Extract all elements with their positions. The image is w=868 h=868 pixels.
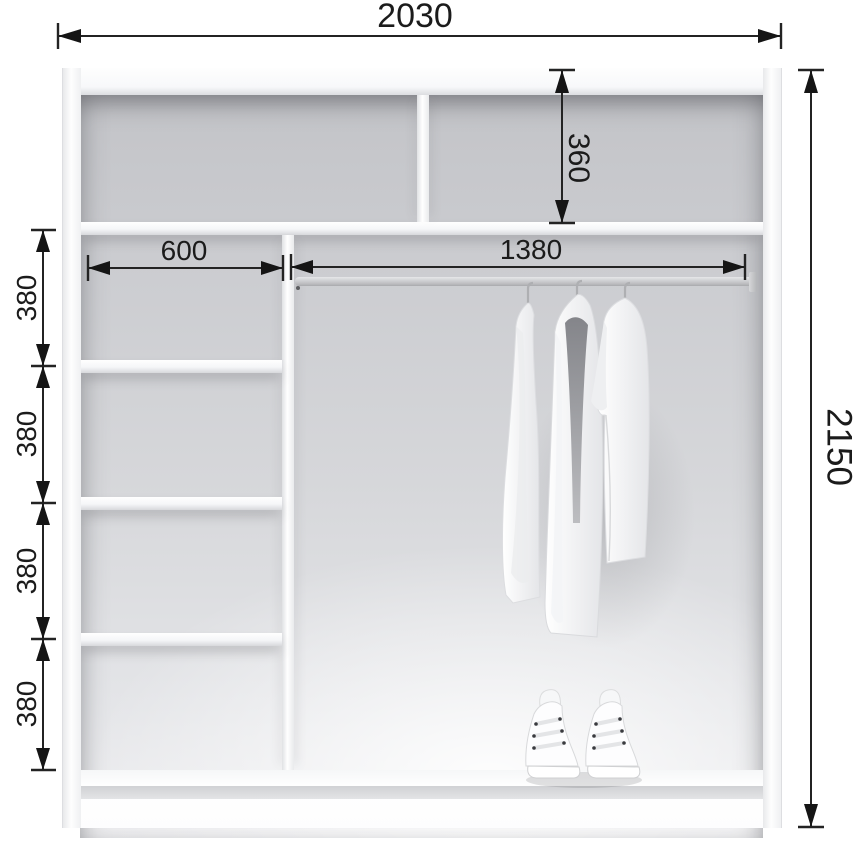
dim-label-total-width: 2030 [377,0,453,33]
dim-label-total-height: 2150 [822,408,857,486]
dimension-lines-layer [0,0,868,868]
dim-label-spacing-4: 380 [13,681,41,728]
dim-label-left-column-width: 600 [161,237,208,265]
dim-label-spacing-3: 380 [13,548,41,595]
dim-label-top-compartment: 360 [563,133,593,183]
dim-label-spacing-2: 380 [13,411,41,458]
dim-label-spacing-1: 380 [13,275,41,322]
dim-label-rod-width: 1380 [500,236,562,264]
wardrobe-dimension-diagram: 2030 2150 360 600 1380 380 380 380 380 [0,0,868,868]
